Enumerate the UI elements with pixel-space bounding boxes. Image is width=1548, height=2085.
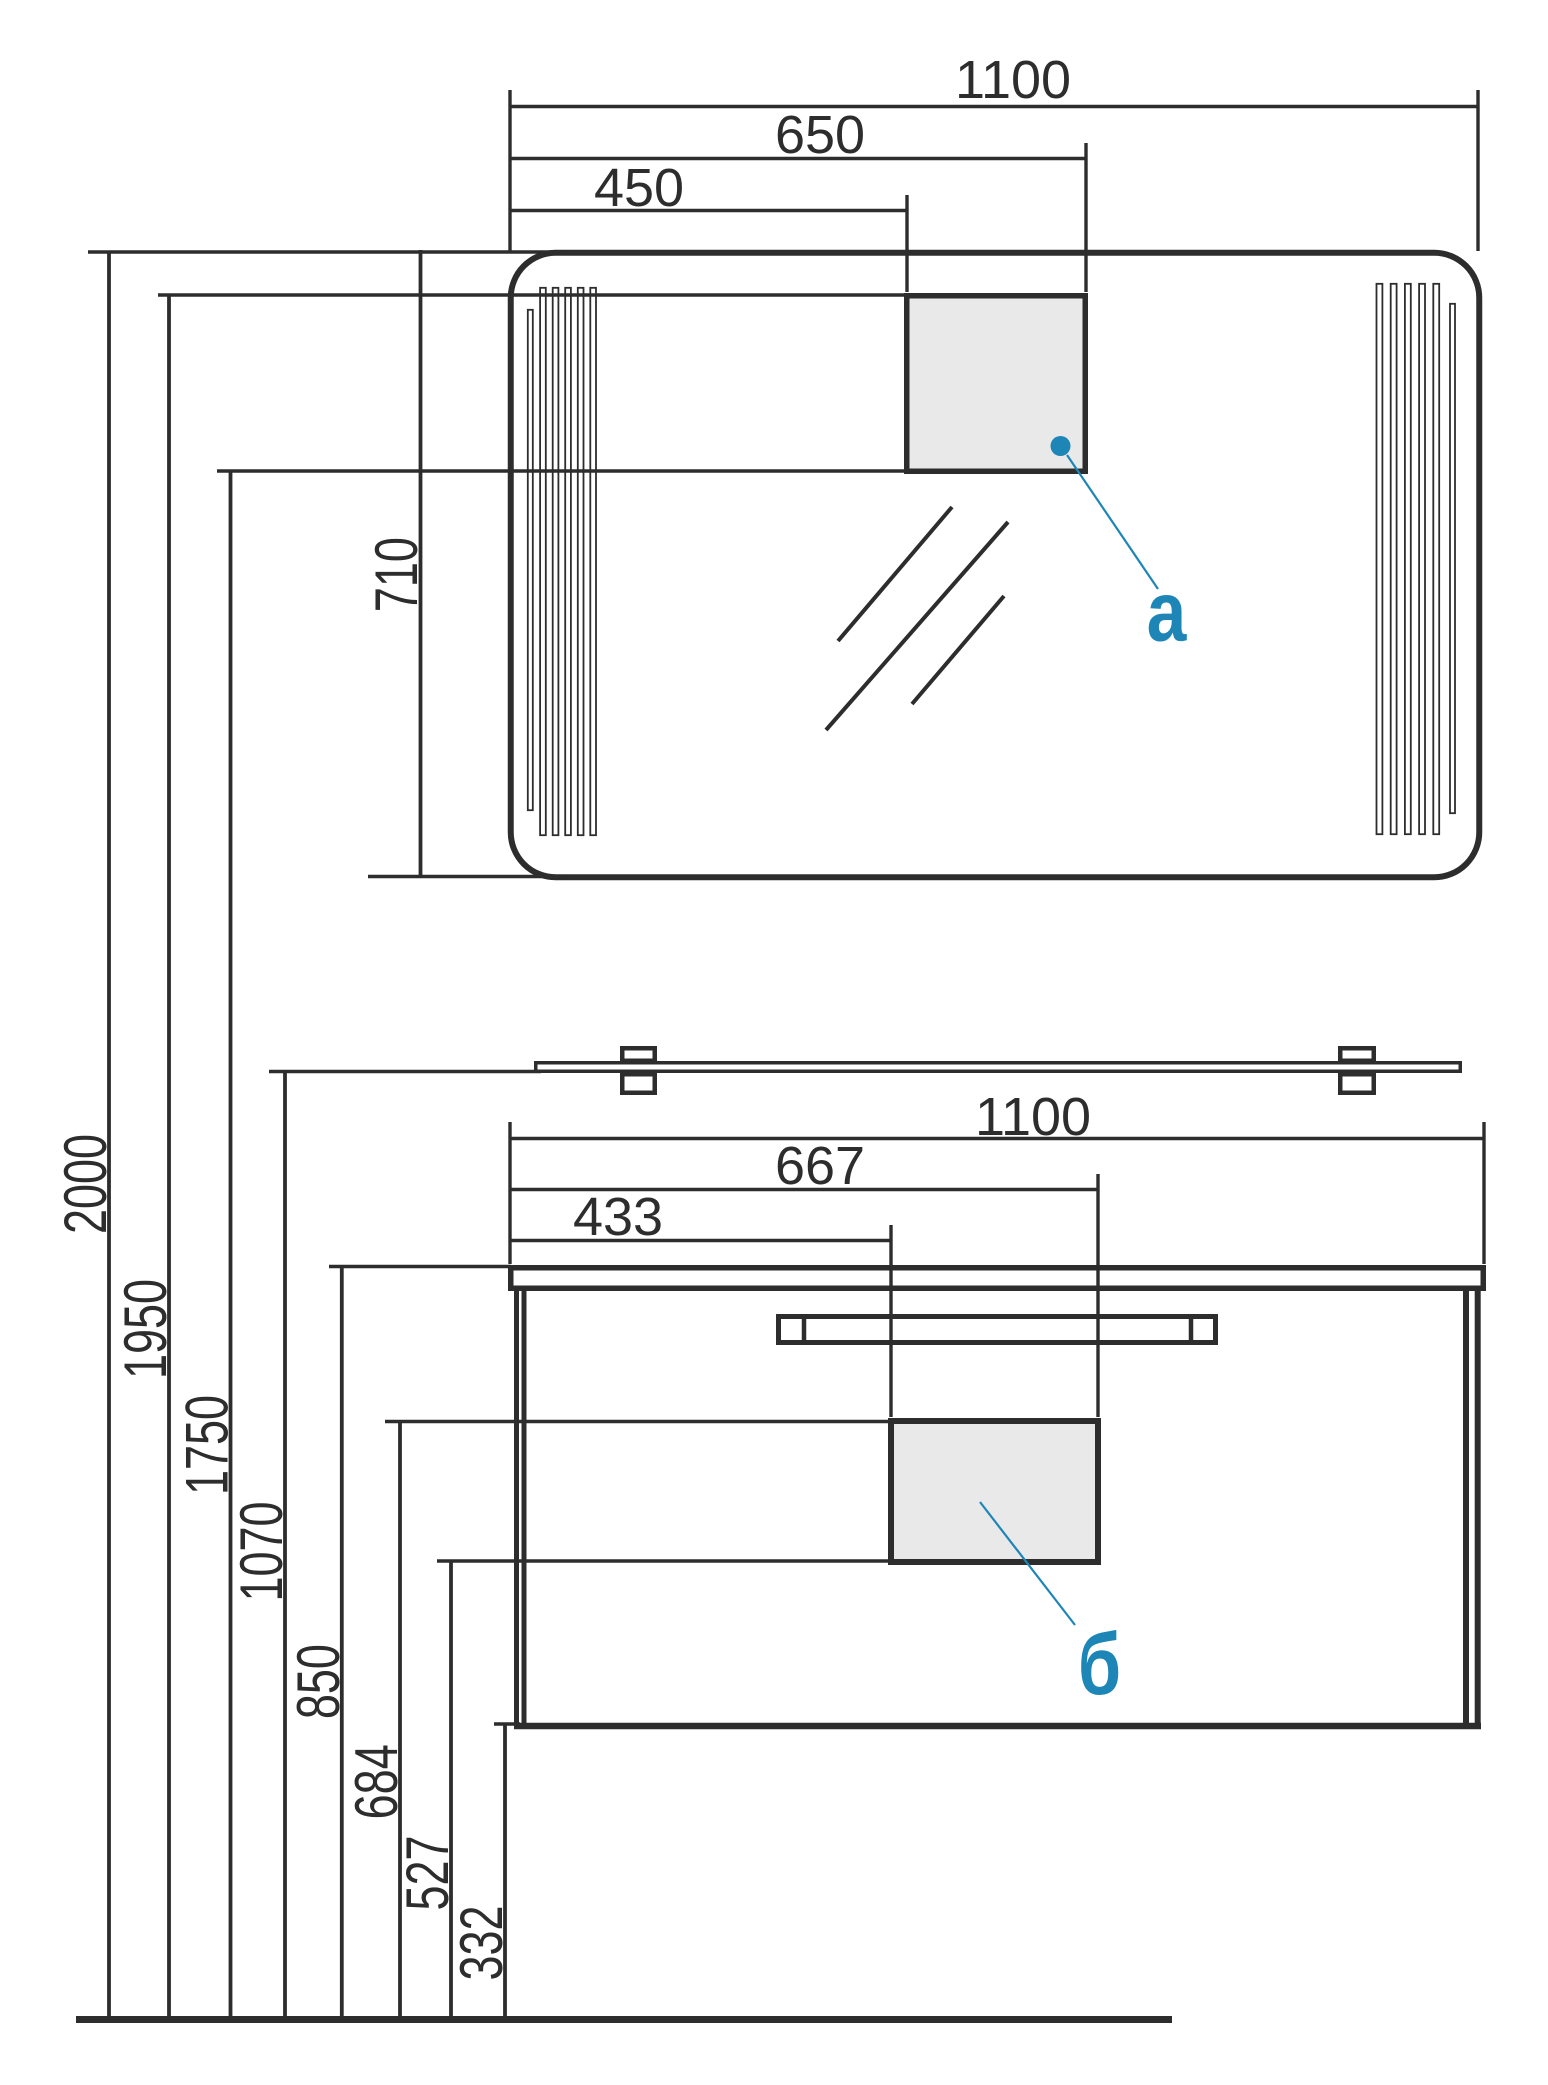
svg-text:332: 332 [449,1905,516,1980]
svg-text:б: б [1078,1616,1121,1713]
svg-text:2000: 2000 [53,1134,120,1234]
svg-text:684: 684 [344,1744,411,1819]
svg-text:850: 850 [286,1644,353,1719]
svg-text:1750: 1750 [174,1395,241,1495]
svg-text:433: 433 [573,1187,663,1247]
svg-text:710: 710 [364,537,431,612]
svg-text:650: 650 [775,105,865,165]
svg-text:1950: 1950 [113,1279,180,1379]
svg-text:1100: 1100 [955,50,1071,110]
svg-text:а: а [1147,564,1187,659]
svg-text:450: 450 [594,158,684,218]
svg-text:667: 667 [775,1136,865,1196]
svg-text:1100: 1100 [975,1087,1091,1147]
svg-text:1070: 1070 [229,1501,296,1601]
svg-text:527: 527 [395,1835,462,1910]
